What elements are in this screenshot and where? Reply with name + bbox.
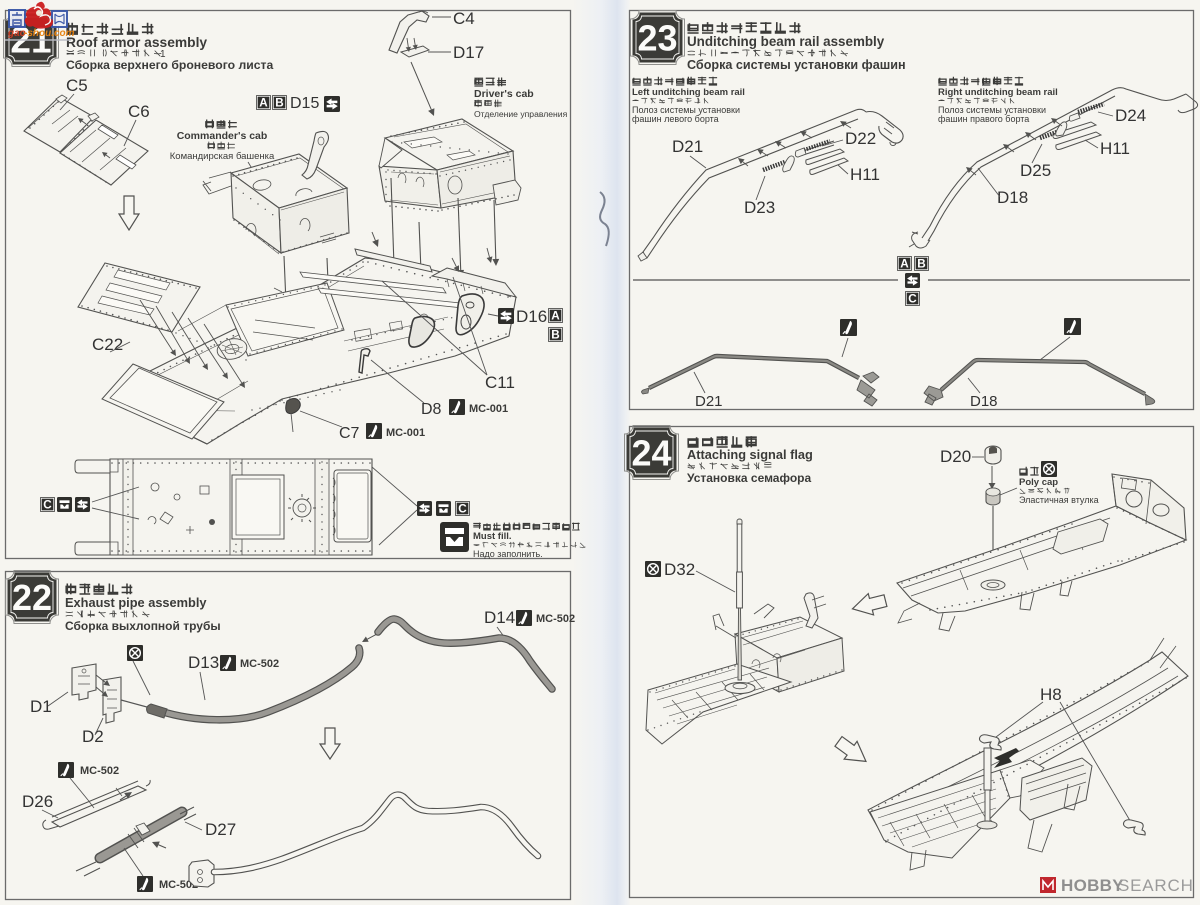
svg-text:D21: D21 [672, 137, 703, 156]
svg-text:Exhaust pipe assembly: Exhaust pipe assembly [65, 595, 207, 610]
svg-text:23: 23 [637, 18, 677, 59]
svg-text:D27: D27 [205, 820, 236, 839]
svg-text:D13: D13 [188, 653, 219, 672]
svg-text:MC-001: MC-001 [386, 427, 425, 439]
svg-text:MC-502: MC-502 [240, 658, 279, 670]
svg-text:C5: C5 [66, 76, 88, 95]
svg-text:A: A [259, 97, 268, 110]
svg-text:D26: D26 [22, 792, 53, 811]
svg-text:Установка семафора: Установка семафора [687, 471, 811, 485]
svg-text:H8: H8 [1040, 685, 1062, 704]
svg-text:D32: D32 [664, 560, 695, 579]
svg-text:D15: D15 [290, 95, 319, 112]
svg-text:HOBBY: HOBBY [1061, 876, 1124, 895]
svg-text:C6: C6 [128, 102, 150, 121]
svg-text:Сборка верхнего броневого лист: Сборка верхнего броневого листа [66, 58, 273, 72]
svg-text:C: C [43, 499, 52, 512]
svg-text:A: A [551, 310, 560, 323]
svg-text:C4: C4 [453, 9, 475, 28]
svg-text:B: B [275, 97, 283, 110]
svg-text:Must fill.: Must fill. [473, 531, 512, 542]
svg-text:MC-502: MC-502 [80, 765, 119, 777]
svg-text:D8: D8 [421, 401, 442, 418]
svg-text:22: 22 [12, 577, 52, 618]
svg-text:Сборка выхлопной трубы: Сборка выхлопной трубы [65, 619, 221, 633]
svg-text:фашин правого борта: фашин правого борта [938, 114, 1029, 124]
svg-text:gao: gao [7, 28, 26, 39]
svg-text:C7: C7 [339, 425, 360, 442]
svg-text:D2: D2 [82, 727, 104, 746]
svg-text:D16: D16 [516, 307, 547, 326]
svg-text:C11: C11 [485, 373, 515, 392]
svg-text:Roof armor assembly: Roof armor assembly [66, 35, 207, 50]
svg-text:H11: H11 [850, 165, 880, 184]
svg-text:B: B [917, 258, 925, 271]
svg-text:D17: D17 [453, 43, 484, 62]
svg-text:Unditching beam rail assembly: Unditching beam rail assembly [687, 34, 885, 49]
svg-text:C: C [458, 503, 467, 516]
svg-text:Commander's cab: Commander's cab [177, 130, 268, 142]
svg-text:D1: D1 [30, 697, 52, 716]
svg-text:Left unditching beam rail: Left unditching beam rail [632, 87, 745, 98]
svg-text:фашин левого борта: фашин левого борта [632, 114, 719, 124]
svg-text:Poly cap: Poly cap [1019, 477, 1058, 488]
svg-text:SEARCH: SEARCH [1118, 876, 1194, 895]
svg-text:Attaching signal flag: Attaching signal flag [687, 447, 813, 462]
svg-text:24: 24 [631, 433, 671, 474]
svg-text:D24: D24 [1115, 106, 1146, 125]
svg-text:Надо заполнить.: Надо заполнить. [473, 549, 543, 559]
svg-text:D18: D18 [970, 393, 998, 410]
svg-text:Driver's cab: Driver's cab [474, 88, 534, 100]
svg-text:D21: D21 [695, 393, 723, 410]
svg-text:D14: D14 [484, 608, 515, 627]
svg-text:Отделение управления: Отделение управления [474, 109, 568, 119]
svg-text:D22: D22 [845, 129, 876, 148]
svg-text:Эластичная втулка: Эластичная втулка [1019, 495, 1099, 505]
svg-text:D25: D25 [1020, 161, 1051, 180]
svg-text:D23: D23 [744, 198, 775, 217]
svg-text:Сборка системы установки фашин: Сборка системы установки фашин [687, 58, 906, 72]
svg-text:MC-001: MC-001 [469, 403, 508, 415]
svg-text:C22: C22 [92, 335, 123, 354]
svg-text:-shou.com: -shou.com [24, 28, 75, 39]
svg-text:Командирская башенка: Командирская башенка [170, 151, 275, 162]
svg-text:B: B [551, 329, 559, 342]
svg-text:H11: H11 [1100, 139, 1130, 158]
svg-text:Right unditching beam rail: Right unditching beam rail [938, 87, 1058, 98]
svg-text:MC-502: MC-502 [536, 613, 575, 625]
svg-text:A: A [900, 258, 909, 271]
svg-text:D20: D20 [940, 447, 971, 466]
svg-text:C: C [908, 293, 917, 306]
svg-text:D18: D18 [997, 188, 1028, 207]
